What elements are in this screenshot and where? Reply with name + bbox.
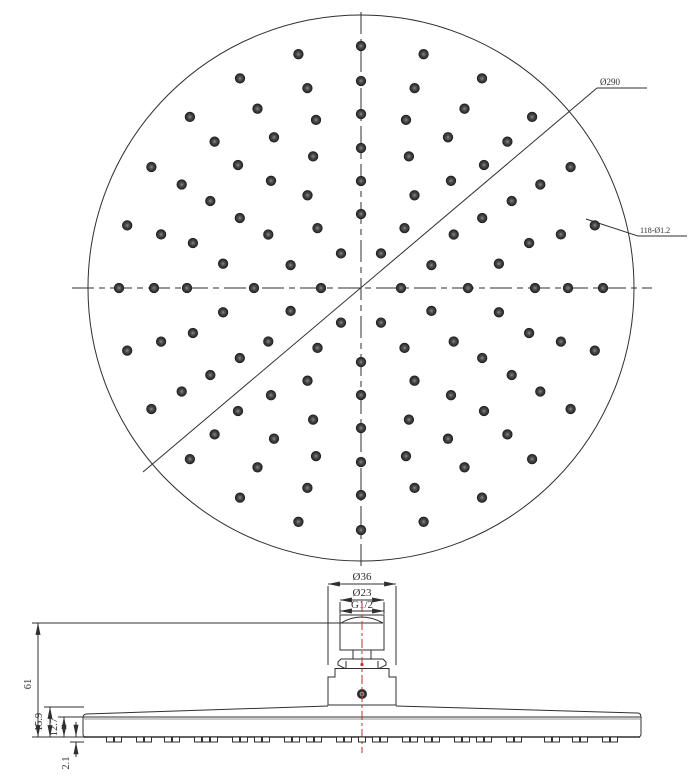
nozzle-hole bbox=[401, 451, 411, 461]
nozzle-hole bbox=[235, 493, 245, 503]
nozzle-hole bbox=[479, 406, 489, 416]
nozzle-hole bbox=[313, 223, 323, 233]
nozzle-bump bbox=[611, 737, 618, 742]
nozzle-hole bbox=[443, 133, 453, 143]
nozzle-hole bbox=[527, 112, 537, 122]
nozzle-hole bbox=[427, 260, 437, 270]
nozzle-hole bbox=[503, 430, 513, 440]
nozzle-bump bbox=[359, 737, 366, 742]
nozzle-hole bbox=[188, 328, 198, 338]
nozzle-hole bbox=[590, 346, 600, 356]
nozzle-bump bbox=[373, 737, 380, 742]
nozzle-hole bbox=[410, 83, 420, 93]
nozzle-hole bbox=[527, 454, 537, 464]
red-center-mark bbox=[360, 663, 363, 666]
nozzle-bump bbox=[263, 737, 270, 742]
nozzle-hole bbox=[446, 390, 456, 400]
nozzle-bump bbox=[173, 737, 180, 742]
nozzle-bump bbox=[455, 737, 462, 742]
nozzle-bump bbox=[463, 737, 470, 742]
nozzle-bump bbox=[581, 737, 588, 742]
nozzle-hole bbox=[443, 434, 453, 444]
nozzle-bump bbox=[515, 737, 522, 742]
nozzle-hole bbox=[556, 230, 566, 240]
nozzle-bump bbox=[211, 737, 218, 742]
nozzle-hole bbox=[303, 376, 313, 386]
nozzle-hole bbox=[253, 463, 263, 473]
nozzle-hole bbox=[356, 457, 366, 467]
nozzle-bump bbox=[195, 737, 202, 742]
nozzle-hole bbox=[460, 463, 470, 473]
nozzle-hole bbox=[210, 137, 220, 147]
nozzle-bump bbox=[285, 737, 292, 742]
nozzle-hole bbox=[524, 238, 534, 248]
nozzle-bump bbox=[307, 737, 314, 742]
face-view bbox=[72, 12, 687, 568]
nozzle-hole bbox=[147, 162, 157, 172]
nozzle-hole bbox=[206, 196, 216, 206]
nozzle-hole bbox=[356, 109, 366, 119]
nozzle-hole bbox=[356, 357, 366, 367]
nozzle-hole bbox=[235, 74, 245, 84]
nozzle-hole bbox=[410, 483, 420, 493]
nozzle-hole bbox=[396, 283, 406, 293]
nozzle-hole bbox=[356, 209, 366, 219]
nozzle-hole bbox=[356, 423, 366, 433]
nozzle-bump bbox=[137, 737, 144, 742]
nozzle-bump bbox=[411, 737, 418, 742]
nozzle-hole bbox=[356, 143, 366, 153]
nozzle-bump bbox=[573, 737, 580, 742]
nozzle-hole bbox=[376, 318, 386, 328]
nozzle-hole bbox=[286, 260, 296, 270]
nozzle-hole bbox=[477, 213, 487, 223]
holes-label: 118-Ø1.2 bbox=[640, 226, 670, 235]
dim-label-inner-width: Ø23 bbox=[353, 587, 372, 599]
nozzle-hole bbox=[188, 238, 198, 248]
nozzle-hole bbox=[303, 191, 313, 201]
nozzle-hole bbox=[264, 230, 274, 240]
nozzle-hole bbox=[269, 434, 279, 444]
nozzle-hole bbox=[449, 337, 459, 347]
drawing-svg: Ø290 118-Ø1.2 Ø36 Ø23 G1/2 bbox=[0, 0, 688, 779]
nozzle-hole bbox=[356, 390, 366, 400]
nozzle-bump bbox=[485, 737, 492, 742]
nozzle-hole bbox=[303, 83, 313, 93]
nozzle-hole bbox=[336, 318, 346, 328]
nozzle-hole bbox=[336, 249, 346, 259]
nozzle-hole bbox=[524, 328, 534, 338]
nozzle-hole bbox=[401, 115, 411, 125]
nozzle-hole bbox=[122, 221, 132, 231]
dim-label-outer-width: Ø36 bbox=[353, 571, 372, 583]
nozzle-hole bbox=[494, 259, 504, 269]
nozzle-bump bbox=[433, 737, 440, 742]
nozzle-hole bbox=[479, 160, 489, 170]
nozzle-hole bbox=[156, 337, 166, 347]
nozzle-hole bbox=[235, 353, 245, 363]
nozzle-hole bbox=[266, 390, 276, 400]
nozzle-hole bbox=[477, 493, 487, 503]
nozzle-hole bbox=[356, 490, 366, 500]
nozzle-hole bbox=[313, 343, 323, 353]
nozzle-bump bbox=[115, 737, 122, 742]
nozzle-bump bbox=[507, 737, 514, 742]
nozzle-bump bbox=[255, 737, 262, 742]
nozzle-hole bbox=[206, 370, 216, 380]
nozzle-hole bbox=[308, 152, 318, 162]
nozzle-hole bbox=[311, 451, 321, 461]
nozzle-hole bbox=[503, 137, 513, 147]
nozzle-bump bbox=[381, 737, 388, 742]
nozzle-hole bbox=[446, 176, 456, 186]
nozzle-bump bbox=[545, 737, 552, 742]
nozzle-bump bbox=[403, 737, 410, 742]
nozzle-hole bbox=[507, 196, 517, 206]
disc-top-slope-left bbox=[86, 706, 328, 714]
nozzle-hole bbox=[177, 180, 187, 190]
nozzle-hole bbox=[536, 180, 546, 190]
nozzle-hole bbox=[308, 415, 318, 425]
nozzle-hole bbox=[410, 376, 420, 386]
nozzle-hole bbox=[147, 404, 157, 414]
nozzle-hole bbox=[185, 112, 195, 122]
nozzle-hole bbox=[427, 306, 437, 316]
nozzle-hole bbox=[294, 49, 304, 59]
nozzle-hole bbox=[266, 176, 276, 186]
nozzle-hole bbox=[185, 454, 195, 464]
nozzle-hole bbox=[530, 283, 540, 293]
dim-label-rim-height: 12.7 bbox=[49, 718, 60, 736]
shower-head-technical-drawing: Ø290 118-Ø1.2 Ø36 Ø23 G1/2 bbox=[0, 0, 688, 779]
nozzle-hole bbox=[177, 387, 187, 397]
nozzle-bumps-row bbox=[107, 737, 618, 742]
nozzle-hole bbox=[122, 346, 132, 356]
nozzle-bump bbox=[145, 737, 152, 742]
nozzle-hole bbox=[563, 283, 573, 293]
nozzle-hole bbox=[449, 230, 459, 240]
nozzle-hole bbox=[356, 76, 366, 86]
nozzle-hole bbox=[286, 306, 296, 316]
nozzle-hole bbox=[419, 517, 429, 527]
nozzle-hole bbox=[556, 337, 566, 347]
nozzle-hole bbox=[249, 283, 259, 293]
nozzle-hole bbox=[566, 404, 576, 414]
nozzle-bump bbox=[345, 737, 352, 742]
nozzle-hole bbox=[269, 133, 279, 143]
nozzle-hole bbox=[182, 283, 192, 293]
nozzle-bump bbox=[425, 737, 432, 742]
nozzle-bump bbox=[293, 737, 300, 742]
nozzle-bump bbox=[337, 737, 344, 742]
nozzle-hole bbox=[598, 283, 608, 293]
dim-label-edge-height: 15.9 bbox=[34, 713, 45, 731]
nozzle-hole bbox=[419, 49, 429, 59]
nozzle-hole bbox=[303, 483, 313, 493]
nozzle-bump bbox=[553, 737, 560, 742]
disc-top-slope-right bbox=[396, 706, 638, 713]
nozzle-hole bbox=[356, 176, 366, 186]
nozzle-hole bbox=[400, 343, 410, 353]
nozzle-hole bbox=[356, 525, 366, 535]
dim-label-nozzle: 2.1 bbox=[61, 756, 72, 769]
nozzle-hole bbox=[376, 249, 386, 259]
nozzle-hole bbox=[233, 160, 243, 170]
nozzle-hole bbox=[590, 221, 600, 231]
nozzle-hole bbox=[494, 308, 504, 318]
nozzle-hole bbox=[264, 337, 274, 347]
nozzle-bump bbox=[241, 737, 248, 742]
nozzle-hole bbox=[233, 406, 243, 416]
nozzle-hole bbox=[566, 162, 576, 172]
dim-label-total-height: 61 bbox=[23, 679, 34, 690]
nozzle-hole bbox=[114, 283, 124, 293]
nozzle-hole bbox=[149, 283, 159, 293]
diameter-leader-line bbox=[143, 88, 597, 472]
nozzle-hole bbox=[218, 308, 228, 318]
nozzle-hole bbox=[507, 370, 517, 380]
nozzle-bump bbox=[165, 737, 172, 742]
nozzle-hole bbox=[156, 230, 166, 240]
nozzle-hole bbox=[460, 104, 470, 114]
nozzle-hole bbox=[404, 415, 414, 425]
diameter-label: Ø290 bbox=[600, 77, 620, 87]
nozzle-bump bbox=[603, 737, 610, 742]
nozzle-bump bbox=[203, 737, 210, 742]
nozzle-hole bbox=[477, 353, 487, 363]
nozzle-hole bbox=[477, 74, 487, 84]
nozzle-hole bbox=[210, 430, 220, 440]
nozzle-hole bbox=[410, 191, 420, 201]
nozzle-hole bbox=[316, 283, 326, 293]
nozzle-hole bbox=[536, 387, 546, 397]
nozzle-bump bbox=[107, 737, 114, 742]
nozzle-bump bbox=[477, 737, 484, 742]
nozzle-hole bbox=[404, 152, 414, 162]
nozzle-hole bbox=[356, 41, 366, 51]
nozzle-hole bbox=[235, 213, 245, 223]
nozzle-hole bbox=[400, 223, 410, 233]
nozzle-hole bbox=[463, 283, 473, 293]
nozzle-hole bbox=[218, 259, 228, 269]
nozzle-bump bbox=[315, 737, 322, 742]
nozzle-hole bbox=[311, 115, 321, 125]
nozzle-hole bbox=[294, 517, 304, 527]
nozzle-bump bbox=[233, 737, 240, 742]
nozzle-hole bbox=[253, 104, 263, 114]
